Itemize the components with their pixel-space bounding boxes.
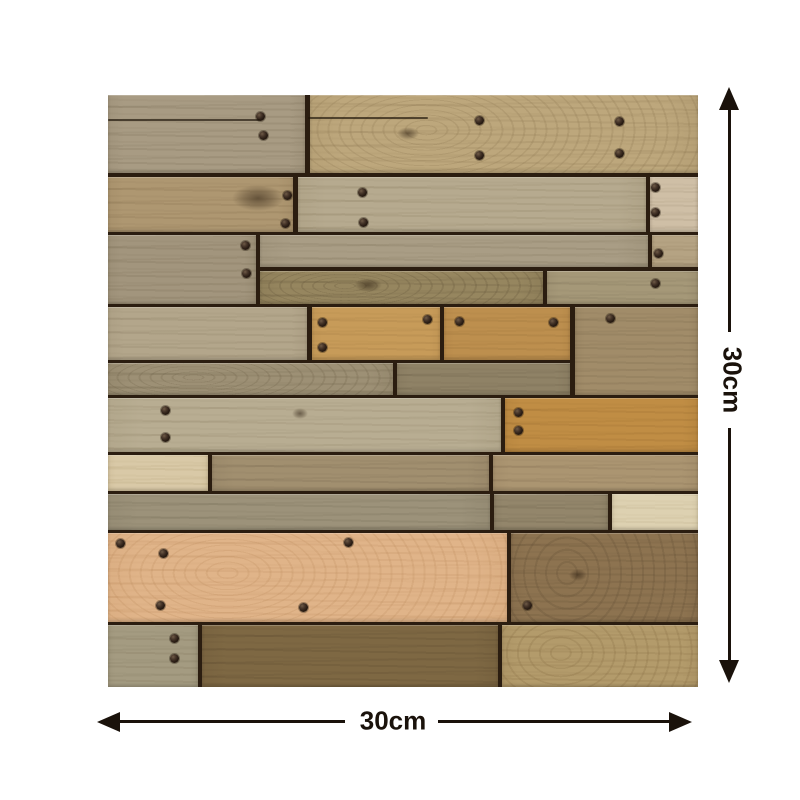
screw-dot xyxy=(651,208,660,217)
wood-plank xyxy=(108,307,307,360)
arrow-left-icon xyxy=(97,712,120,732)
wood-crack xyxy=(308,117,428,119)
screw-dot xyxy=(423,315,432,324)
wood-plank xyxy=(505,398,698,452)
wood-panel xyxy=(108,95,698,687)
dimension-line xyxy=(118,720,345,723)
screw-dot xyxy=(615,149,624,158)
wood-plank xyxy=(108,95,305,173)
arrow-down-icon xyxy=(719,660,739,683)
wood-plank xyxy=(260,235,648,267)
wood-plank xyxy=(310,95,698,173)
wood-plank xyxy=(298,177,646,232)
screw-dot xyxy=(318,318,327,327)
wood-knot xyxy=(397,127,419,140)
arrow-right-icon xyxy=(669,712,692,732)
screw-dot xyxy=(170,634,179,643)
screw-dot xyxy=(159,549,168,558)
wood-plank xyxy=(493,455,698,491)
wood-plank xyxy=(108,363,393,395)
wood-crack xyxy=(108,119,260,121)
wood-plank xyxy=(108,625,198,687)
width-dimension-label: 30cm xyxy=(360,706,427,737)
wood-plank xyxy=(397,363,570,395)
wood-plank xyxy=(108,455,208,491)
screw-dot xyxy=(359,218,368,227)
screw-dot xyxy=(654,249,663,258)
screw-dot xyxy=(281,219,290,228)
screw-dot xyxy=(318,343,327,352)
wood-knot xyxy=(569,569,587,581)
screw-dot xyxy=(514,426,523,435)
wood-plank xyxy=(212,455,489,491)
dimension-line xyxy=(728,428,731,661)
wood-knot xyxy=(354,278,382,292)
wood-plank xyxy=(612,494,698,530)
screw-dot xyxy=(344,538,353,547)
screw-dot xyxy=(651,279,660,288)
screw-dot xyxy=(116,539,125,548)
wood-knot xyxy=(232,185,284,211)
screw-dot xyxy=(283,191,292,200)
wood-plank xyxy=(511,533,698,622)
screw-dot xyxy=(523,601,532,610)
product-image: 30cm 30cm xyxy=(0,0,800,800)
screw-dot xyxy=(259,131,268,140)
wood-plank xyxy=(502,625,698,687)
arrow-up-icon xyxy=(719,87,739,110)
screw-dot xyxy=(170,654,179,663)
height-dimension-label: 30cm xyxy=(717,347,748,414)
screw-dot xyxy=(358,188,367,197)
wood-plank xyxy=(260,271,543,304)
wood-plank xyxy=(108,494,490,530)
wood-plank xyxy=(547,271,698,304)
screw-dot xyxy=(651,183,660,192)
screw-dot xyxy=(242,269,251,278)
wood-plank xyxy=(312,307,440,360)
screw-dot xyxy=(549,318,558,327)
screw-dot xyxy=(241,241,250,250)
screw-dot xyxy=(475,116,484,125)
wood-plank xyxy=(202,625,498,687)
wood-plank xyxy=(444,307,570,360)
screw-dot xyxy=(475,151,484,160)
wood-plank xyxy=(575,307,698,395)
screw-dot xyxy=(514,408,523,417)
screw-dot xyxy=(161,406,170,415)
screw-dot xyxy=(161,433,170,442)
dimension-line xyxy=(728,108,731,332)
dimension-line xyxy=(438,720,671,723)
screw-dot xyxy=(615,117,624,126)
wood-plank xyxy=(108,235,256,304)
screw-dot xyxy=(606,314,615,323)
wood-knot xyxy=(292,408,308,419)
screw-dot xyxy=(156,601,165,610)
screw-dot xyxy=(299,603,308,612)
screw-dot xyxy=(455,317,464,326)
wood-plank xyxy=(494,494,608,530)
